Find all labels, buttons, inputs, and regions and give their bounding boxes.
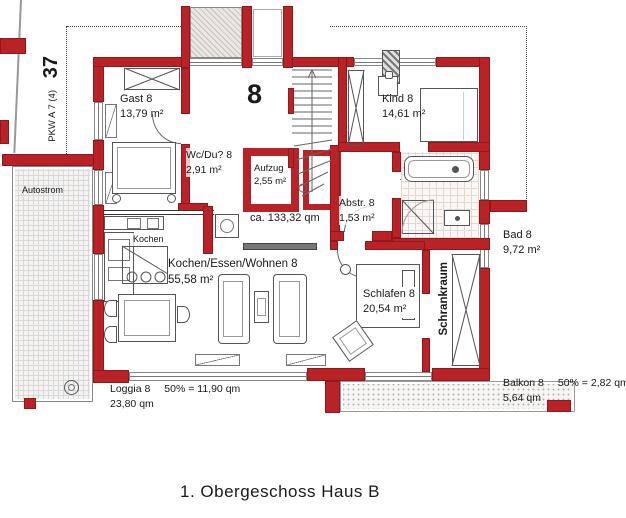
outdoor-area: 5,64 qm [503,391,626,406]
room-area: 20,54 m² [363,302,415,317]
interior-wall [330,231,344,241]
room-area: 2,91 m² [186,163,232,178]
loggia-label: Loggia 850% = 11,90 qm 23,80 qm [110,382,240,411]
loggia-line1: Loggia 850% = 11,90 qm [110,382,240,397]
loggia-area [12,166,93,402]
interior-wall [338,57,347,152]
wardrobe [452,254,480,366]
chair [104,326,117,343]
exterior-wall [93,57,189,67]
staircase [292,64,332,198]
kochen-label: Kochen [133,233,164,246]
roof-outline-left [66,26,67,154]
kitchen-partition [104,210,214,215]
chair [104,300,117,317]
outdoor-area: 23,80 qm [110,397,240,412]
kitchen-counter [104,216,164,230]
room-name: Gast 8 [120,92,163,107]
balkon-label: Balkon 850% = 2,82 qm 5,64 qm [503,376,626,405]
neighbor-wall-block [0,120,9,144]
bed-post [112,194,121,203]
room-name: Wc/Du? 8 [186,148,232,163]
exterior-wall [432,368,490,381]
room-area: 1,53 m² [339,211,375,226]
room-name: Bad 8 [503,228,540,243]
interior-wall [365,241,425,250]
exterior-wall [93,140,104,170]
room-label-wcdu: Wc/Du? 8 2,91 m² [186,148,232,177]
upper-balcony-area [190,7,242,58]
room-label-gast: Gast 8 13,79 m² [120,92,163,123]
balcony-door [189,58,242,66]
room-label-schlafen: Schlafen 8 20,54 m² [363,287,415,318]
bed [420,88,478,142]
interior-wall [330,241,338,250]
roof-outline-right [526,26,527,203]
outdoor-name: Loggia 8 [110,383,150,395]
room-label-wohnen: Kochen/Essen/Wohnen 8 55,58 m² [168,256,298,288]
room-area: 13,79 m² [120,107,163,122]
room-name: Schlafen 8 [363,287,415,302]
glass-front [129,372,307,381]
wardrobe [124,68,180,90]
window-sash [105,104,117,138]
bathtub [404,156,474,182]
loggia-corner-block [24,398,36,409]
drawing-title: 1. Obergeschoss Haus B [0,480,560,504]
interior-wall [422,338,430,372]
exterior-wall [479,268,490,383]
interior-wall [203,206,213,254]
room-area: 2,55 m² [254,175,286,188]
room-label-bad: Bad 8 9,72 m² [503,228,540,259]
stair-top-opening [252,58,283,66]
floor-plan: 37 PKW A 7 (4) Autostrom [0,0,626,518]
flower-icon [64,380,79,395]
plot-number: 37 [40,56,63,78]
room-name: Kochen/Essen/Wohnen 8 [168,256,298,272]
room-name: Kind 8 [382,92,425,107]
wall [242,6,252,68]
roof-outline-top-left [67,26,187,27]
unit-number: 8 [247,76,262,114]
neighbor-wall-block [0,38,26,54]
room-label-kind: Kind 8 14,61 m² [382,92,425,123]
room-label-aufzug: Aufzug 2,55 m² [254,162,286,189]
interior-wall [392,152,401,172]
interior-wall [372,231,392,241]
window [94,102,103,140]
room-name: Abstr. 8 [339,196,375,211]
coffee-table [254,291,269,323]
room-label-schrankraum: Schrankraum [438,262,450,336]
bed-post [167,194,176,203]
door-jamb [288,88,294,114]
total-area-label: ca. 133,32 qm [250,211,320,226]
interior-wall [181,68,190,114]
exterior-wall [479,200,490,224]
room-name: Aufzug [254,162,286,175]
side-table [340,264,351,275]
window [94,170,103,205]
chair [177,306,190,323]
property-line [13,0,21,153]
parking-label: PKW A 7 (4) [47,90,58,142]
kitchen-island [122,246,168,284]
loggia-top-wall [2,154,104,166]
room-area: 9,72 m² [503,243,540,258]
glass-front [365,372,432,381]
room-area: 55,58 m² [168,272,298,288]
roof-outline-top-right [330,26,527,27]
room-area: 14,61 m² [382,107,425,122]
wardrobe [348,70,364,146]
shower [402,200,434,234]
outdoor-name: Balkon 8 [503,377,544,389]
exterior-wall [479,57,490,170]
kitchen-appliance [215,214,239,238]
interior-wall [422,250,430,294]
wall-stub [490,200,527,212]
outdoor-calc: 50% = 2,82 qm [558,377,626,389]
dining-table [118,294,176,342]
door-jamb [288,148,294,168]
window [480,170,489,200]
interior-wall [428,142,490,152]
sideboard [243,243,317,250]
balkon-line1: Balkon 850% = 2,82 qm [503,376,626,391]
interior-wall [392,198,401,238]
room-label-abstell: Abstr. 8 1,53 m² [339,196,375,225]
tilted-window-pane [286,354,326,366]
outdoor-calc: 50% = 11,90 qm [164,383,240,395]
bed [112,142,176,194]
pillar-stem [325,381,340,413]
tilted-window-pane [195,354,240,366]
washbasin [444,210,470,226]
autostrom-label: Autostrom [22,184,63,197]
window [94,254,103,300]
stair-landing [253,9,282,57]
pillar [307,368,365,381]
exterior-wall [93,205,104,254]
wall [181,6,190,68]
